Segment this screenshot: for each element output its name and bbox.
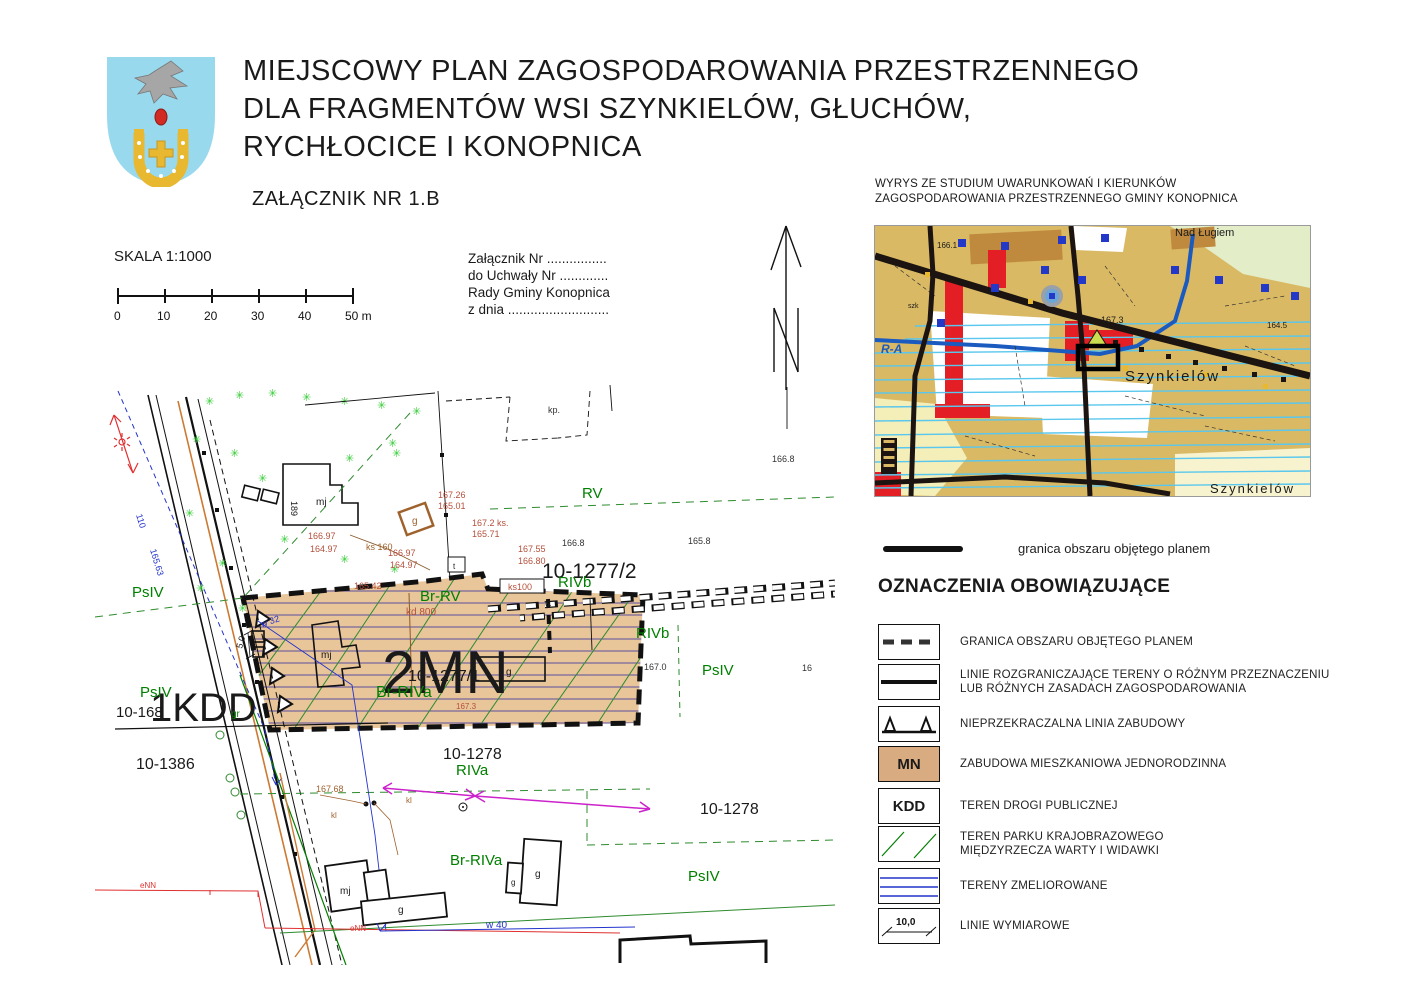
soil-br-riva-a: Br-RIVa bbox=[376, 684, 432, 701]
legend-heading: OZNACZENIA OBOWIĄZUJĄCE bbox=[878, 576, 1170, 598]
legend-label: TEREN DROGI PUBLICZNEJ bbox=[960, 800, 1118, 812]
legend-symbol-dashed-boundary bbox=[878, 624, 940, 660]
building-g-4: g bbox=[535, 869, 541, 880]
gmina-crest bbox=[105, 55, 217, 187]
soil-br-rv: Br-RV bbox=[420, 588, 461, 605]
legend-symbol-building-line bbox=[878, 706, 940, 742]
note-line-2: do Uchwały Nr ............. bbox=[468, 267, 610, 284]
soil-psiv-c: PsIV bbox=[702, 662, 734, 679]
label-w-40: w 40 bbox=[485, 920, 508, 931]
attachment-label: ZAŁĄCZNIK NR 1.B bbox=[252, 188, 440, 211]
legend-row-zabudowy: NIEPRZEKRACZALNA LINIA ZABUDOWY bbox=[878, 706, 1185, 742]
elev-164-97-a: 164.97 bbox=[310, 544, 338, 554]
inset-label-ra: R-A bbox=[881, 342, 902, 356]
elev-166-97-a: 166.97 bbox=[308, 531, 336, 541]
legend-symbol-melioration bbox=[878, 868, 940, 904]
elev-167-55: 167.55 bbox=[518, 544, 546, 554]
svg-text:✳: ✳ bbox=[258, 473, 267, 485]
scale-bar: 0 10 20 30 40 50 m bbox=[108, 278, 408, 329]
svg-text:✳: ✳ bbox=[185, 508, 194, 520]
legend-symbol-dimension: 10,0 bbox=[878, 908, 940, 944]
legend-symbol-solid-line bbox=[878, 664, 940, 700]
svg-text:✳: ✳ bbox=[218, 558, 227, 570]
elev-165-8: 165.8 bbox=[688, 536, 711, 546]
legend-label: TEREN PARKU KRAJOBRAZOWEGO bbox=[960, 831, 1164, 843]
building-g-5: g bbox=[511, 878, 515, 887]
note-line-4: z dnia ........................... bbox=[468, 301, 610, 318]
parcel-10-168: 10-168 bbox=[116, 704, 163, 721]
building-189: 189 bbox=[289, 501, 299, 516]
label-enn-b: eNN bbox=[350, 924, 366, 933]
scale-label: SKALA 1:1000 bbox=[114, 248, 212, 265]
building-mj-1: mj bbox=[316, 497, 327, 508]
legend-label: LINIE WYMIAROWE bbox=[960, 920, 1070, 932]
label-enn-a: eNN bbox=[140, 881, 156, 890]
svg-text:✳: ✳ bbox=[235, 390, 244, 402]
legend-label: NIEPRZEKRACZALNA LINIA ZABUDOWY bbox=[960, 718, 1185, 730]
label-165-63: 165.63 bbox=[148, 548, 166, 577]
scale-tick-50: 50 m bbox=[345, 309, 372, 323]
legend-symbol-mn: MN bbox=[878, 746, 940, 782]
building-g-2: g bbox=[506, 667, 512, 678]
legend-symbol-dimension-text: 10,0 bbox=[896, 917, 916, 928]
svg-text:✳: ✳ bbox=[302, 392, 311, 404]
legend-row-park: TEREN PARKU KRAJOBRAZOWEGO MIĘDZYRZECZA … bbox=[878, 826, 1164, 862]
legend-symbol-kdd: KDD bbox=[878, 788, 940, 824]
study-inset-map: Nad Ługiem 166.1 167.3 164.5 Szynkielów … bbox=[875, 226, 1310, 496]
soil-psiv-b: PsIV bbox=[140, 684, 172, 701]
legend-label: LINIE ROZGRANICZAJĄCE TERENY O RÓŻNYM PR… bbox=[960, 669, 1330, 681]
label-kd-800: kd 800 bbox=[406, 607, 436, 618]
building-mj-2: mj bbox=[321, 650, 332, 661]
title-line-3: RYCHŁOCICE I KONOPNICA bbox=[243, 128, 1139, 166]
legend-row-kdd: KDD TEREN DROGI PUBLICZNEJ bbox=[878, 788, 1118, 824]
elev-167-0: 167.0 bbox=[644, 662, 667, 672]
label-kp: kp. bbox=[548, 405, 560, 415]
label-ks100: ks100 bbox=[508, 582, 532, 592]
elev-167-2-ks: 167.2 ks. bbox=[472, 518, 509, 528]
elev-165-42: 165.42 bbox=[354, 581, 382, 591]
inset-elev-164: 164.5 bbox=[1267, 321, 1288, 330]
elev-166-8-a: 166.8 bbox=[772, 454, 795, 464]
svg-text:✳: ✳ bbox=[196, 583, 205, 595]
soil-riva: RIVa bbox=[456, 762, 489, 779]
soil-psiv-d: PsIV bbox=[688, 868, 720, 885]
legend-label: TERENY ZMELIOROWANE bbox=[960, 880, 1108, 892]
svg-text:✳: ✳ bbox=[238, 603, 247, 615]
soil-rv: RV bbox=[582, 485, 603, 502]
note-line-3: Rady Gminy Konopnica bbox=[468, 284, 610, 301]
elev-166-80: 166.80 bbox=[518, 556, 546, 566]
inset-label-szynkielow-2: Szynkielów bbox=[1210, 481, 1295, 496]
svg-text:✳: ✳ bbox=[392, 448, 401, 460]
svg-text:✳: ✳ bbox=[377, 400, 386, 412]
inset-elev-166: 166.1 bbox=[937, 241, 958, 250]
legend-row-zmeliorowane: TERENY ZMELIOROWANE bbox=[878, 868, 1108, 904]
legend-symbol-mn-text: MN bbox=[878, 746, 940, 782]
soil-gr: gr bbox=[231, 709, 241, 720]
survey-arrow-icon bbox=[110, 415, 138, 473]
svg-text:✳: ✳ bbox=[340, 554, 349, 566]
legend-row-wymiarowe: 10,0 LINIE WYMIAROWE bbox=[878, 908, 1070, 944]
inset-label-szk: szk bbox=[908, 303, 919, 310]
scale-tick-40: 40 bbox=[298, 309, 312, 323]
parcel-10-1278-b: 10-1278 bbox=[700, 801, 759, 818]
svg-text:✳: ✳ bbox=[268, 388, 277, 400]
elev-167-68: 167.68 bbox=[316, 784, 344, 794]
main-plan-map: ✳✳✳ ✳✳✳ ✳✳✳ ✳✳✳ ✳✳✳ ✳✳✳ ✳✳✳ bbox=[90, 385, 835, 965]
scale-tick-30: 30 bbox=[251, 309, 265, 323]
label-w-dot: w. bbox=[544, 601, 552, 608]
title-line-2: DLA FRAGMENTÓW WSI SZYNKIELÓW, GŁUCHÓW, bbox=[243, 90, 1139, 128]
boundary-sample-line bbox=[883, 546, 963, 552]
elev-partial: 16 bbox=[802, 663, 812, 673]
soil-psiv-a: PsIV bbox=[132, 584, 164, 601]
parcel-10-1386: 10-1386 bbox=[136, 756, 195, 773]
title-line-1: MIEJSCOWY PLAN ZAGOSPODAROWANIA PRZESTRZ… bbox=[243, 52, 1139, 90]
elev-166-8-b: 166.8 bbox=[562, 538, 585, 548]
label-110: 110 bbox=[134, 513, 148, 530]
soil-rivb-b: RIVb bbox=[636, 625, 669, 642]
legend-row-mn: MN ZABUDOWA MIESZKANIOWA JEDNORODZINNA bbox=[878, 746, 1226, 782]
study-title-line-2: ZAGOSPODAROWANIA PRZESTRZENNEGO GMINY KO… bbox=[875, 192, 1238, 207]
legend-row-granica: GRANICA OBSZARU OBJĘTEGO PLANEM bbox=[878, 624, 1193, 660]
svg-text:✳: ✳ bbox=[205, 396, 214, 408]
soil-rivb-a: RIVb bbox=[558, 574, 591, 591]
legend-row-linie: LINIE ROZGRANICZAJĄCE TERENY O RÓŻNYM PR… bbox=[878, 664, 1330, 700]
building-mj-3: mj bbox=[340, 886, 351, 897]
legend-label: GRANICA OBSZARU OBJĘTEGO PLANEM bbox=[960, 636, 1193, 648]
legend-label-2: LUB RÓŻNYCH ZASADACH ZAGOSPODAROWANIA bbox=[960, 683, 1246, 695]
study-title-line-1: WYRYS ZE STUDIUM UWARUNKOWAŃ I KIERUNKÓW bbox=[875, 177, 1238, 192]
boundary-sample-label: granica obszaru objętego planem bbox=[1018, 541, 1210, 556]
svg-text:✳: ✳ bbox=[280, 534, 289, 546]
svg-text:✳: ✳ bbox=[345, 453, 354, 465]
parcel-10-1278-a: 10-1278 bbox=[443, 746, 502, 763]
label-ks-160: ks 160 bbox=[366, 542, 393, 552]
elev-167-3: 167.3 bbox=[456, 702, 477, 711]
legend-symbol-kdd-text: KDD bbox=[878, 788, 940, 824]
soil-br-riva-b: Br-RIVa bbox=[450, 852, 503, 869]
svg-text:✳: ✳ bbox=[230, 448, 239, 460]
magenta-arrows bbox=[383, 783, 650, 812]
note-line-1: Załącznik Nr ................ bbox=[468, 250, 610, 267]
scale-tick-10: 10 bbox=[157, 309, 171, 323]
inset-label-nad-lugiem: Nad Ługiem bbox=[1175, 227, 1234, 239]
elev-167-26: 167.26 bbox=[438, 490, 466, 500]
study-title: WYRYS ZE STUDIUM UWARUNKOWAŃ I KIERUNKÓW… bbox=[875, 177, 1238, 207]
scale-tick-20: 20 bbox=[204, 309, 218, 323]
north-arrow-icon bbox=[756, 220, 816, 397]
page-title: MIEJSCOWY PLAN ZAGOSPODAROWANIA PRZESTRZ… bbox=[243, 52, 1139, 166]
legend-label: ZABUDOWA MIESZKANIOWA JEDNORODZINNA bbox=[960, 758, 1226, 770]
label-kl-b: kl bbox=[406, 796, 412, 805]
scale-tick-0: 0 bbox=[114, 309, 121, 323]
label-kl-a: kl bbox=[331, 811, 337, 820]
building-g-3: g bbox=[398, 905, 404, 916]
elev-165-71: 165.71 bbox=[472, 529, 500, 539]
legend-symbol-park-hatch bbox=[878, 826, 940, 862]
elev-164-97-b: 164.97 bbox=[390, 560, 418, 570]
crest-apple bbox=[155, 109, 167, 125]
svg-text:✳: ✳ bbox=[192, 434, 201, 446]
inset-elev-167: 167.3 bbox=[1101, 315, 1124, 325]
inset-label-szynkielow: Szynkielów bbox=[1125, 368, 1220, 385]
legend-label-2: MIĘDZYRZECZA WARTY I WIDAWKI bbox=[960, 845, 1159, 857]
elev-165-01: 165.01 bbox=[438, 501, 466, 511]
svg-text:✳: ✳ bbox=[412, 406, 421, 418]
building-g-1: g bbox=[412, 516, 418, 527]
resolution-note: Załącznik Nr ................ do Uchwały… bbox=[468, 250, 610, 318]
